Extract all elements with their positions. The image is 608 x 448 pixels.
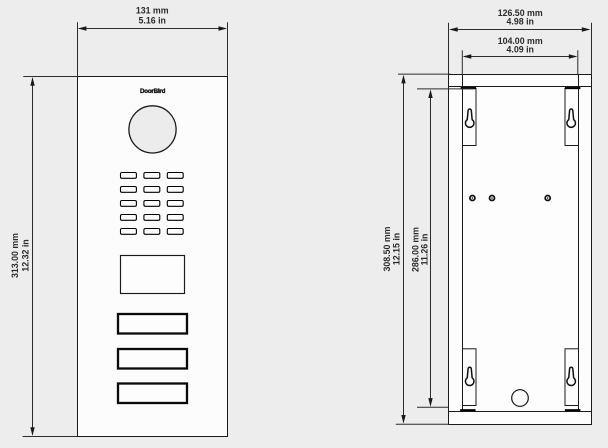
svg-text:12.32 in: 12.32 in — [20, 239, 30, 271]
svg-text:4.98 in: 4.98 in — [507, 16, 534, 26]
svg-text:5.16 in: 5.16 in — [139, 16, 166, 26]
svg-text:12.15 in: 12.15 in — [391, 233, 401, 265]
svg-text:131 mm: 131 mm — [136, 5, 169, 15]
svg-text:DoorBird: DoorBird — [140, 88, 166, 95]
svg-text:313.00 mm: 313.00 mm — [10, 233, 20, 278]
svg-text:11.26 in: 11.26 in — [419, 234, 429, 266]
svg-text:4.09 in: 4.09 in — [507, 45, 534, 55]
